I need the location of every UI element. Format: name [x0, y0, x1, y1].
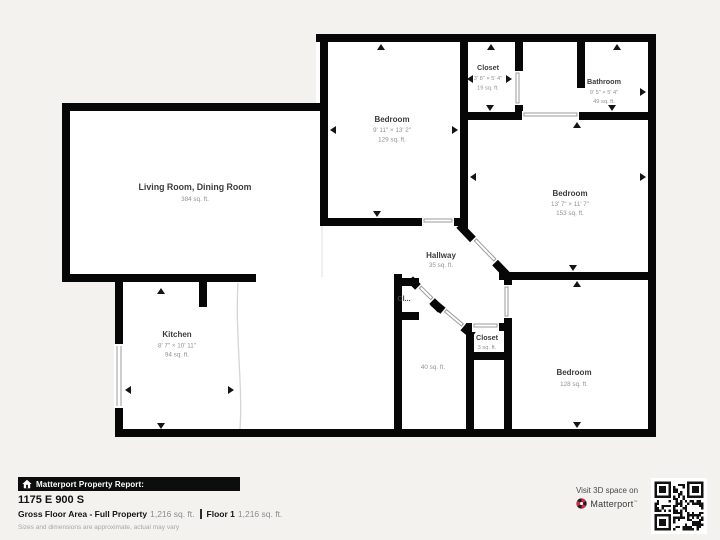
room-label-bedroom-top: Bedroom: [374, 115, 409, 124]
door-bedroom-top: [422, 217, 454, 227]
room-area-utility: 40 sq. ft.: [421, 364, 445, 371]
room-dims-bathroom: 9' 5" × 5' 4": [590, 90, 619, 96]
matterport-brand-row: Matterport™: [564, 498, 650, 509]
room-label-living: Living Room, Dining Room: [139, 182, 252, 192]
room-fill-bottom: [115, 274, 656, 437]
room-area-bedroom-bottom: 128 sq. ft.: [560, 381, 588, 388]
room-area-bathroom: 49 sq. ft.: [593, 99, 615, 105]
room-label-cl-closet: Cl...: [397, 294, 410, 303]
room-label-kitchen: Kitchen: [162, 330, 191, 339]
room-area-kitchen: 94 sq. ft.: [165, 352, 189, 359]
trademark-mark: ™: [633, 499, 637, 504]
room-area-bedroom-right: 153 sq. ft.: [556, 210, 584, 217]
room-fill-living: [62, 103, 328, 282]
matterport-logo-icon: [576, 498, 587, 509]
visit-3d-text: Visit 3D space on: [564, 486, 650, 495]
window-kitchen: [114, 344, 124, 408]
room-area-hallway: 35 sq. ft.: [429, 262, 453, 269]
floor-plan: Living Room, Dining Room 384 sq. ft. Bed…: [0, 0, 720, 460]
floor1-label: Floor 1: [207, 509, 235, 519]
summary-divider: [200, 509, 202, 519]
floor-area-summary: Gross Floor Area - Full Property 1,216 s…: [18, 509, 282, 519]
report-header-bar: Matterport Property Report:: [18, 477, 240, 491]
room-area-closet-small: 3 sq. ft.: [478, 345, 497, 351]
door-closet-small: [472, 322, 499, 332]
property-report-page: Living Room, Dining Room 384 sq. ft. Bed…: [0, 0, 720, 540]
room-dims-bedroom-top: 9' 11" × 13' 2": [373, 127, 411, 134]
room-label-hallway: Hallway: [426, 251, 456, 260]
gross-floor-area-label: Gross Floor Area - Full Property: [18, 509, 147, 519]
property-address: 1175 E 900 S: [18, 494, 84, 506]
floor1-value: 1,216 sq. ft.: [238, 509, 282, 519]
matterport-brand-text: Matterport™: [590, 499, 637, 509]
visit-3d-cta: Visit 3D space on Matterport™: [564, 486, 650, 509]
gross-floor-area-value: 1,216 sq. ft.: [150, 509, 194, 519]
room-label-bathroom: Bathroom: [587, 77, 621, 86]
disclaimer-text: Sizes and dimensions are approximate, ac…: [18, 524, 179, 531]
room-label-closet-small: Closet: [476, 333, 499, 342]
door-bathroom: [522, 111, 579, 121]
room-area-closet-top: 19 sq. ft.: [477, 86, 499, 92]
room-dims-kitchen: 8' 7" × 10' 11": [158, 343, 196, 350]
room-area-bedroom-top: 129 sq. ft.: [378, 137, 406, 144]
room-dims-closet-top: 3' 8" × 5' 4": [474, 76, 503, 82]
door-bedroom-bottom: [503, 285, 513, 318]
room-label-bedroom-bottom: Bedroom: [556, 368, 591, 377]
qr-code: [651, 478, 707, 534]
room-dims-bedroom-right: 13' 7" × 11' 7": [551, 201, 589, 208]
door-closet-top: [514, 71, 524, 105]
room-label-closet-top: Closet: [477, 63, 500, 72]
report-bar-label: Matterport Property Report:: [36, 480, 144, 489]
house-icon: [22, 479, 32, 489]
room-area-living: 384 sq. ft.: [181, 196, 209, 203]
room-label-bedroom-right: Bedroom: [552, 189, 587, 198]
